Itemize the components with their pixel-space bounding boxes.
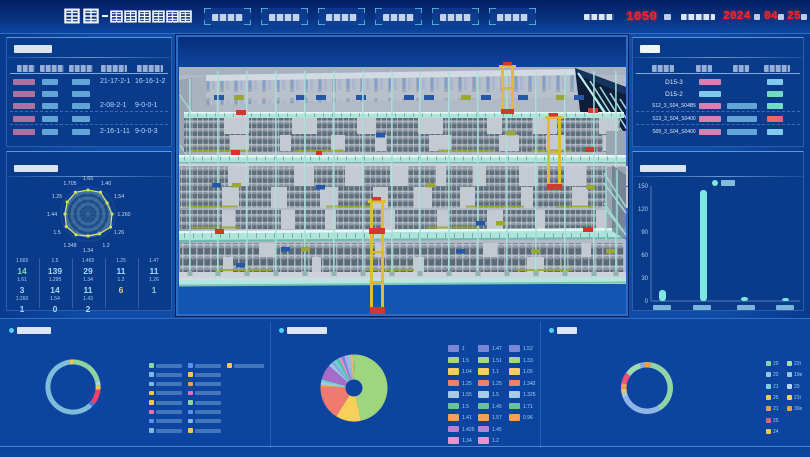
- svg-text:0: 0: [645, 299, 649, 305]
- svg-text:1.54: 1.54: [114, 194, 124, 200]
- svg-text:1.705: 1.705: [63, 181, 76, 187]
- svg-text:150: 150: [638, 184, 649, 190]
- svg-text:1.44: 1.44: [47, 212, 57, 218]
- svg-text:30: 30: [641, 276, 648, 282]
- svg-text:120: 120: [638, 207, 649, 213]
- svg-text:60: 60: [641, 253, 648, 259]
- svg-text:1.2: 1.2: [102, 243, 109, 249]
- svg-text:90: 90: [641, 230, 648, 236]
- svg-text:1.260: 1.260: [117, 212, 130, 218]
- svg-text:1.5: 1.5: [53, 230, 60, 236]
- svg-text:1.25: 1.25: [52, 194, 62, 200]
- svg-text:1.34: 1.34: [83, 248, 93, 252]
- svg-text:1.65: 1.65: [83, 176, 93, 182]
- svg-text:1.348: 1.348: [63, 243, 76, 249]
- svg-text:1.40: 1.40: [101, 181, 111, 187]
- svg-text:1.26: 1.26: [114, 230, 124, 236]
